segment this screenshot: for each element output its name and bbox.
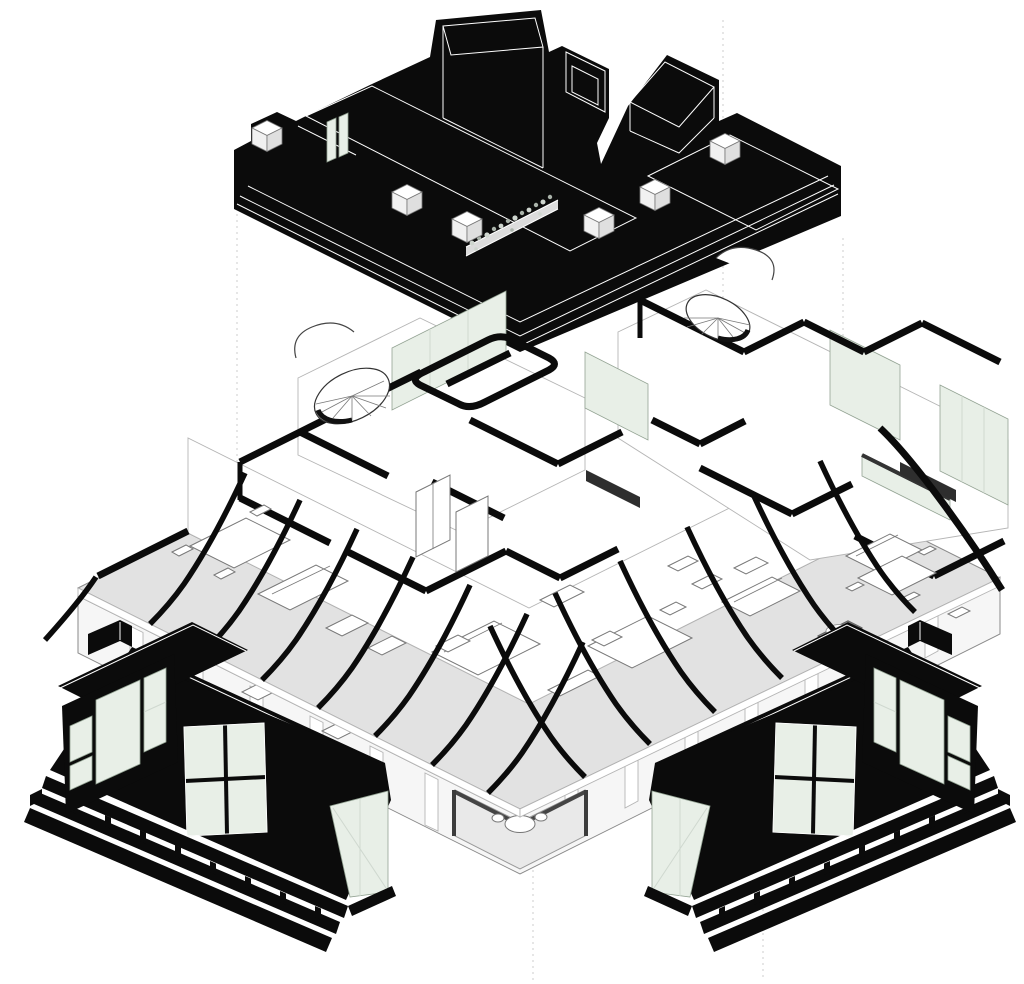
diagram-canvas [0,0,1024,984]
four-pane-window [184,723,267,836]
exploded-axonometric-diagram [0,0,1024,984]
balcony-chair [492,814,504,822]
round-table [505,816,535,833]
balcony-chair [535,813,547,821]
roof-assembly [234,10,841,352]
roof-silhouette [234,10,841,352]
